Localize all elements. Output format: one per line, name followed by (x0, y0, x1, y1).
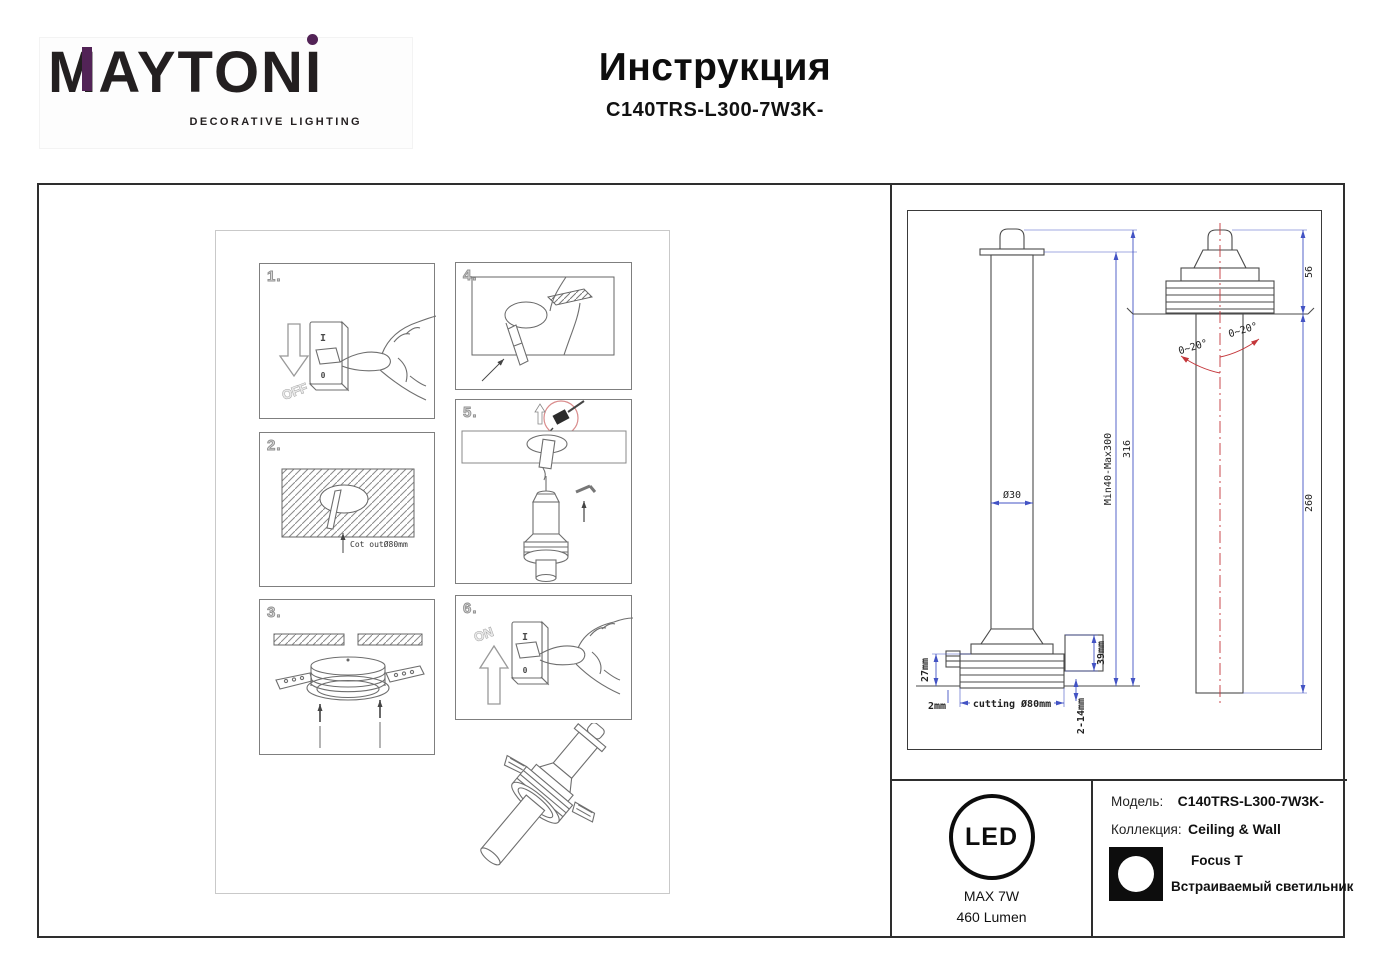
on-label: ON (472, 624, 495, 645)
step-panel-6: 6. I 0 (455, 595, 632, 720)
model-label: Модель: (1111, 794, 1163, 809)
dim-total-label: 316 (1122, 440, 1133, 458)
dim-ceiling-label: 2-14mm (1076, 698, 1087, 734)
power-on-illustration: I 0 ON (456, 596, 633, 721)
up-arrow-icon (535, 404, 545, 424)
ceiling-cutout-illustration: Cot outØ80mm (260, 433, 436, 588)
series-name: Focus T (1191, 853, 1243, 868)
switch-on-symbol: I (522, 632, 528, 643)
led-label: LED (965, 823, 1018, 852)
spec-panel: Модель: C140TRS-L300-7W3K- Коллекция: Ce… (1093, 781, 1346, 936)
spotlight-circle-icon (1118, 856, 1154, 892)
logo-accent-bar (82, 47, 92, 91)
allen-key (576, 486, 595, 492)
dim-ceiling: 2-14mm (1076, 679, 1087, 734)
lamp-tube (524, 491, 568, 582)
dim-clip: 39mm (1065, 635, 1107, 671)
lumen-output: 460 Lumen (956, 909, 1026, 925)
product-type: Встраиваемый светильник (1171, 879, 1353, 894)
marker-pen (506, 323, 528, 365)
step-panel-1: 1. I 0 (259, 263, 435, 419)
collection-icon (1109, 847, 1163, 901)
dim-cutting-label: cutting Ø80mm (973, 698, 1051, 710)
collection-row: Коллекция: Ceiling & Wall (1111, 821, 1281, 839)
ceiling-left (274, 634, 344, 645)
dimension-drawing: Ø30 Min40-Max300 316 27mm (908, 211, 1320, 748)
dim-total: 316 (1024, 230, 1137, 686)
page-title: Инструкция (555, 46, 875, 90)
document-header: Инструкция C140TRS-L300-7W3K- (555, 46, 875, 122)
hole-marking-illustration (456, 263, 633, 391)
dim-body: 260 (1243, 314, 1315, 693)
switch-off-symbol: 0 (321, 371, 326, 380)
collection-label: Коллекция: (1111, 822, 1182, 837)
logo-letter-i: I (305, 44, 323, 102)
power-off-illustration: I 0 OFF (260, 264, 436, 420)
step-number: 6. (463, 600, 478, 617)
cutout-hole (320, 485, 368, 513)
instruction-sheet: MAYTONI DECORATIVE LIGHTING Инструкция C… (0, 0, 1381, 971)
brand-logo: MAYTONI DECORATIVE LIGHTING (40, 38, 412, 148)
led-circle-icon: LED (949, 794, 1035, 880)
step-panel-5: 5. (455, 399, 632, 584)
hand-illustration (540, 618, 633, 694)
up-arrow-icon (480, 646, 508, 704)
cutout-note: Cot outØ80mm (350, 539, 408, 549)
model-row: Модель: C140TRS-L300-7W3K- (1111, 793, 1324, 811)
dim-clip-label: 39mm (1096, 641, 1107, 665)
step-panel-2: 2. Cot outØ80mm (259, 432, 435, 587)
switch-off-symbol: 0 (523, 666, 528, 675)
angle-left-label: 0~20° (1177, 338, 1209, 357)
step-number: 5. (463, 404, 478, 421)
switch-on-symbol: I (320, 333, 326, 344)
step-number: 3. (267, 604, 282, 621)
logo-subtitle: DECORATIVE LIGHTING (189, 116, 362, 128)
dim-flange-label: 27mm (920, 658, 931, 682)
hand-illustration (550, 277, 580, 355)
section-divider (890, 185, 892, 936)
assembled-lamp-illustration (453, 723, 633, 893)
ceiling-right (358, 634, 422, 645)
model-number-heading: C140TRS-L300-7W3K- (555, 99, 875, 122)
cutout-hole (505, 302, 547, 328)
collection-value: Ceiling & Wall (1188, 821, 1281, 837)
model-value: C140TRS-L300-7W3K- (1178, 793, 1324, 809)
step-number: 4. (463, 267, 478, 284)
pointer-arrow-icon (482, 359, 504, 381)
main-frame: 1. I 0 (37, 183, 1345, 938)
mount-ring-illustration (260, 600, 436, 756)
down-arrow-icon (280, 324, 308, 376)
hand-illustration (340, 316, 436, 400)
tech-drawing-frame: Ø30 Min40-Max300 316 27mm (907, 210, 1322, 750)
dim-head-label: 56 (1304, 266, 1315, 278)
dim-range: Min40-Max300 (1044, 252, 1137, 686)
dim-range-label: Min40-Max300 (1103, 433, 1114, 505)
lamp-body (453, 723, 633, 893)
step-number: 1. (267, 268, 282, 285)
mount-ring (276, 657, 424, 700)
step-number: 2. (267, 437, 282, 454)
dim-gap-label: 2mm (928, 701, 946, 712)
off-label: OFF (280, 380, 310, 403)
dim-cutting: cutting Ø80mm (960, 688, 1064, 710)
wiring-assembly-illustration (456, 400, 633, 585)
assembled-lamp-drawing (453, 723, 633, 893)
switch-illustration: I 0 (310, 322, 348, 390)
step-panel-4: 4. (455, 262, 632, 390)
dim-diameter-label: Ø30 (1003, 489, 1021, 501)
dim-gap: 2mm (928, 690, 948, 712)
led-badge: LED MAX 7W 460 Lumen (894, 783, 1089, 936)
logo-dot-icon (307, 34, 318, 45)
side-view (1127, 230, 1314, 693)
tilt-angles: 0~20° 0~20° (1177, 321, 1259, 373)
step-panel-3: 3. (259, 599, 435, 755)
dim-body-label: 260 (1304, 494, 1315, 512)
max-power: MAX 7W (964, 888, 1019, 904)
